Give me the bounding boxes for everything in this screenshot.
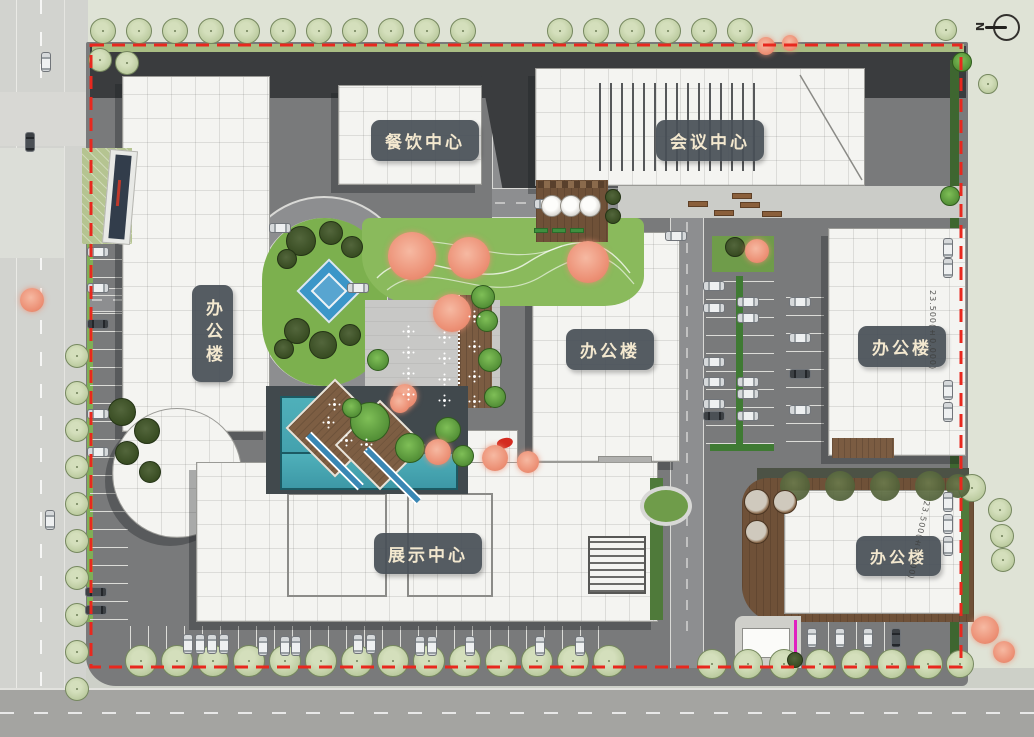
bench-icon	[714, 210, 734, 216]
table-icon	[327, 421, 330, 424]
table-icon	[473, 375, 476, 378]
table-icon	[333, 403, 336, 406]
table-icon	[473, 400, 476, 403]
table-icon	[473, 345, 476, 348]
site-plan: 餐饮中心 会议中心 办公楼 办公楼 办公楼 办公楼 展示中心 23.500(±0…	[0, 0, 1034, 737]
table-icon	[443, 378, 446, 381]
elevation-note-right: 23.500(±0.000)	[928, 290, 937, 370]
furniture-layer	[0, 0, 1034, 737]
table-icon	[407, 372, 410, 375]
green-bench-icon	[570, 228, 584, 233]
table-icon	[443, 336, 446, 339]
planter-icon	[773, 490, 797, 514]
green-bench-icon	[552, 228, 566, 233]
table-icon	[345, 439, 348, 442]
table-icon	[407, 351, 410, 354]
table-icon	[443, 399, 446, 402]
table-icon	[365, 443, 368, 446]
table-icon	[407, 393, 410, 396]
north-label: N	[974, 22, 987, 31]
label-dining: 餐饮中心	[371, 120, 479, 161]
green-bench-icon	[534, 228, 548, 233]
label-conference: 会议中心	[656, 120, 764, 161]
table-icon	[443, 357, 446, 360]
bench-icon	[732, 193, 752, 199]
label-exhibition: 展示中心	[374, 533, 482, 574]
planter-icon	[745, 520, 769, 544]
planter-icon	[744, 489, 770, 515]
label-office-br: 办公楼	[856, 536, 941, 576]
north-arrow-bar	[985, 26, 1007, 29]
umbrella-table-icon	[579, 195, 601, 217]
table-icon	[407, 330, 410, 333]
bench-icon	[762, 211, 782, 217]
bench-icon	[688, 201, 708, 207]
bench-icon	[740, 202, 760, 208]
label-office-left: 办公楼	[192, 285, 233, 382]
label-office-mid: 办公楼	[566, 329, 654, 370]
table-icon	[473, 315, 476, 318]
